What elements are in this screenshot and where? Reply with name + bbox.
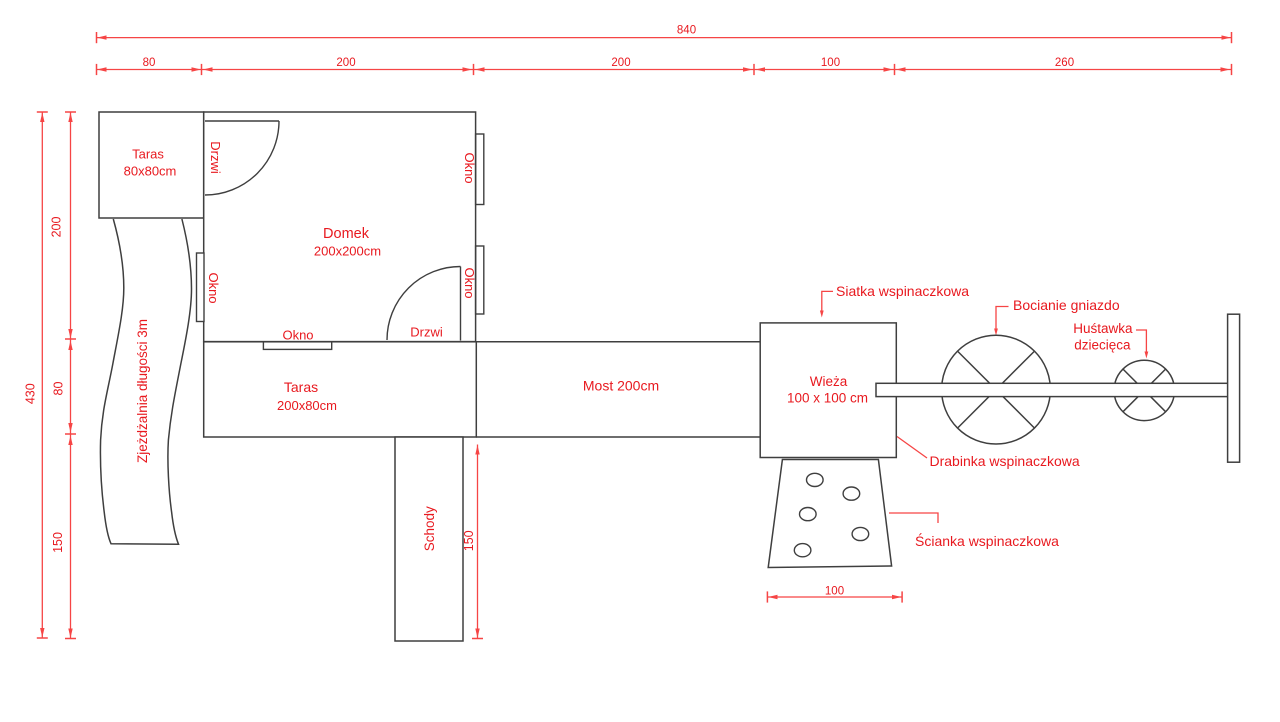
svg-text:200x200cm: 200x200cm bbox=[314, 244, 381, 259]
svg-text:Drabinka wspinaczkowa: Drabinka wspinaczkowa bbox=[930, 453, 1080, 469]
svg-text:100: 100 bbox=[821, 57, 840, 69]
svg-text:Bocianie gniazdo: Bocianie gniazdo bbox=[1013, 297, 1120, 313]
svg-text:80: 80 bbox=[143, 57, 156, 69]
svg-text:430: 430 bbox=[23, 383, 37, 404]
svg-text:Wieża: Wieża bbox=[810, 374, 848, 389]
svg-text:Taras: Taras bbox=[284, 379, 318, 395]
svg-text:Okno: Okno bbox=[462, 152, 477, 183]
svg-text:Drzwi: Drzwi bbox=[208, 141, 223, 174]
svg-text:200: 200 bbox=[611, 57, 630, 69]
svg-text:Taras: Taras bbox=[132, 147, 164, 162]
svg-text:100: 100 bbox=[825, 586, 844, 598]
svg-text:Domek: Domek bbox=[323, 226, 370, 242]
svg-text:200x80cm: 200x80cm bbox=[277, 398, 337, 413]
svg-text:150: 150 bbox=[462, 530, 476, 551]
svg-text:Most 200cm: Most 200cm bbox=[583, 378, 659, 394]
svg-text:Zjeżdżalnia długości 3m: Zjeżdżalnia długości 3m bbox=[135, 319, 150, 463]
svg-text:Ścianka wspinaczkowa: Ścianka wspinaczkowa bbox=[915, 532, 1059, 549]
svg-text:150: 150 bbox=[51, 532, 65, 553]
svg-text:260: 260 bbox=[1055, 57, 1074, 69]
svg-text:Huśtawka: Huśtawka bbox=[1073, 321, 1133, 336]
svg-text:80x80cm: 80x80cm bbox=[124, 164, 177, 179]
svg-text:dziecięca: dziecięca bbox=[1074, 338, 1131, 353]
svg-text:840: 840 bbox=[677, 25, 696, 37]
svg-text:Okno: Okno bbox=[462, 267, 477, 298]
svg-text:200: 200 bbox=[49, 217, 63, 238]
svg-text:Schody: Schody bbox=[422, 506, 437, 551]
svg-text:80: 80 bbox=[51, 382, 65, 396]
svg-text:200: 200 bbox=[336, 57, 355, 69]
svg-text:Okno: Okno bbox=[282, 328, 313, 343]
svg-text:Okno: Okno bbox=[206, 272, 221, 303]
svg-text:Siatka wspinaczkowa: Siatka wspinaczkowa bbox=[836, 283, 969, 299]
svg-text:Drzwi: Drzwi bbox=[410, 325, 443, 340]
svg-text:100 x 100 cm: 100 x 100 cm bbox=[787, 391, 868, 406]
